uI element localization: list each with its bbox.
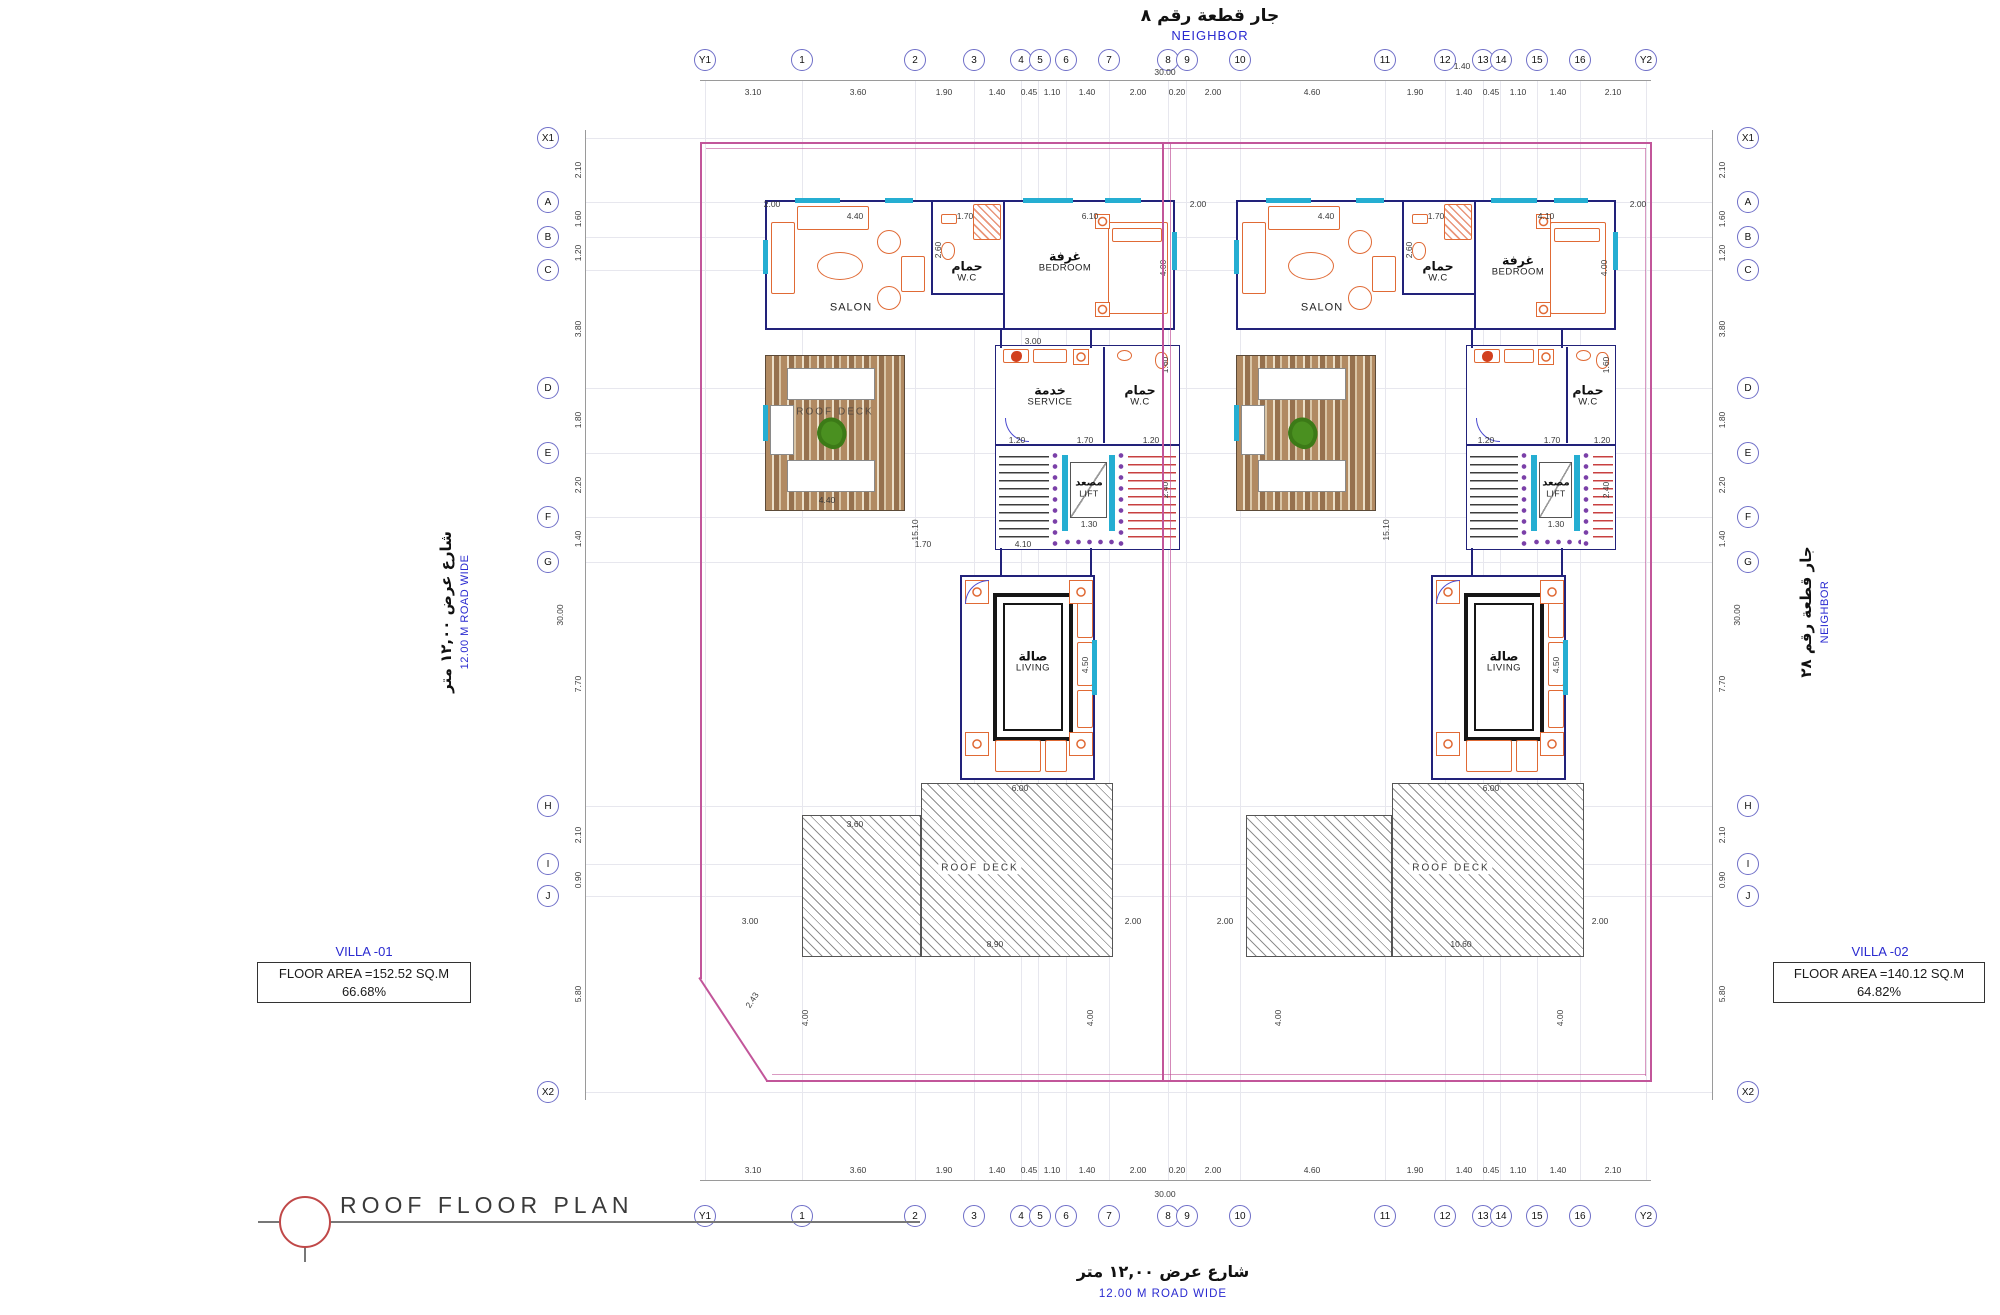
- villa1-percent: 66.68%: [262, 983, 466, 1001]
- grid-bubble: 16: [1569, 49, 1591, 71]
- dimension-text: 6.10: [1082, 211, 1099, 221]
- window-fill: [1234, 240, 1239, 274]
- dimension-text: 4.00: [1599, 260, 1609, 277]
- grid-bubble: G: [537, 551, 559, 573]
- dimension-text: 1.40: [989, 87, 1006, 97]
- wc-label-arabic: حمام: [1572, 383, 1603, 397]
- dimension-text: 1.60: [1717, 211, 1727, 228]
- dimension-text: 1.70: [957, 211, 974, 221]
- roof-deck-label-box: ROOF DECK: [938, 862, 1021, 874]
- dimension-text: 1.90: [1407, 1165, 1424, 1175]
- dimension-text: 1.30: [1081, 519, 1098, 529]
- deck-furniture: [1258, 460, 1346, 492]
- dimension-text: 1.20: [1717, 245, 1727, 262]
- dimension-text: 7.70: [573, 676, 583, 693]
- grid-line: [705, 80, 706, 1180]
- dimension-text: 2.10: [1717, 162, 1727, 179]
- armchair: [1372, 256, 1396, 292]
- lift-shaft-wall: [1531, 455, 1537, 531]
- grid-bubble: 10: [1229, 1205, 1251, 1227]
- seat: [1548, 600, 1564, 638]
- grid-bubble: C: [1737, 259, 1759, 281]
- wall: [931, 293, 1005, 295]
- grid-bubble: 9: [1176, 49, 1198, 71]
- wc-label-arabic: حمام: [1124, 383, 1155, 397]
- site-boundary-inner-line: [1645, 148, 1646, 1076]
- lift-shaft-wall: [1574, 455, 1580, 531]
- window-fill: [1266, 198, 1311, 203]
- window-fill: [1105, 198, 1141, 203]
- room-label-lift: مصعد LIFT: [1542, 477, 1569, 498]
- roof-deck-label: ROOF DECK: [796, 406, 873, 417]
- dimension-text: 2.10: [1605, 87, 1622, 97]
- dimension-text: 4.00: [800, 1010, 810, 1027]
- room-label-service: خدمة SERVICE: [1027, 383, 1072, 408]
- wall: [1474, 202, 1476, 328]
- dimension-text: 1.40: [1717, 531, 1727, 548]
- roof-floor-plan-drawing: جار قطعة رقم ٨ NEIGHBOR Y1 1 2 3 4 5 6 7…: [0, 0, 2000, 1315]
- dimension-text: 3.80: [573, 321, 583, 338]
- dimension-text: 2.20: [573, 477, 583, 494]
- corner-seat: [1069, 580, 1093, 604]
- dimension-text: 0.90: [573, 872, 583, 889]
- grid-bubble: I: [1737, 853, 1759, 875]
- baluster-dots: [1520, 450, 1529, 548]
- armchair: [877, 230, 901, 254]
- window-fill: [1356, 198, 1384, 203]
- corner-seat: [965, 732, 989, 756]
- sofa: [1242, 222, 1266, 294]
- grid-bubble: H: [1737, 795, 1759, 817]
- seat: [1516, 740, 1538, 772]
- service-label-arabic: خدمة: [1027, 383, 1072, 397]
- grid-bubble: 6: [1055, 1205, 1077, 1227]
- dimension-text: 2.10: [1717, 827, 1727, 844]
- dimension-line: [700, 1180, 1651, 1181]
- grid-bubble: E: [537, 442, 559, 464]
- toilet: [941, 242, 955, 260]
- window-fill: [1172, 232, 1177, 270]
- bedroom-label-arabic: غرفة: [1039, 249, 1092, 263]
- dimension-text: 6.00: [1483, 783, 1500, 793]
- dimension-text: 8.90: [987, 939, 1004, 949]
- baluster-dots: [1531, 538, 1581, 547]
- dimension-text: 3.00: [742, 916, 759, 926]
- room-label-wc2: حمام W.C: [1572, 383, 1603, 408]
- dimension-text: 1.20: [1478, 435, 1495, 445]
- villa2-floor-area: FLOOR AREA =140.12 SQ.M: [1778, 965, 1980, 983]
- dimension-text: 4.00: [1273, 1010, 1283, 1027]
- wc-label-english: W.C: [1422, 274, 1453, 285]
- grid-bubble: A: [537, 191, 559, 213]
- room-label-living: صالة LIVING: [1016, 649, 1050, 674]
- dimension-text: 1.70: [1544, 435, 1561, 445]
- sink: [1412, 214, 1428, 224]
- wc-label-arabic: حمام: [951, 259, 982, 273]
- dimension-text: 4.60: [1304, 87, 1321, 97]
- dimension-text: 2.00: [1190, 199, 1207, 209]
- grid-bubble: X1: [1737, 127, 1759, 149]
- dimension-text: 1.40: [1550, 87, 1567, 97]
- dimension-text: 1.40: [1454, 61, 1471, 71]
- wc-label-arabic: حمام: [1422, 259, 1453, 273]
- overall-dimension: 30.00: [1154, 1189, 1175, 1199]
- grid-bubble: 9: [1176, 1205, 1198, 1227]
- grid-bubble: D: [1737, 377, 1759, 399]
- baluster-dots: [1582, 450, 1591, 548]
- sink: [1576, 350, 1591, 361]
- dimension-text: 2.40: [1601, 482, 1611, 499]
- left-road-label: شارع عرض ١٢,٠٠ متر 12.00 M ROAD WIDE: [437, 531, 473, 693]
- grid-bubble: 2: [904, 49, 926, 71]
- armchair: [1348, 286, 1372, 310]
- grid-bubble: 1: [791, 1205, 813, 1227]
- overall-dimension: 30.00: [1154, 67, 1175, 77]
- dimension-text: 1.10: [1510, 87, 1527, 97]
- dimension-text: 0.90: [1717, 872, 1727, 889]
- window-fill: [1491, 198, 1537, 203]
- room-label-bedroom: غرفة BEDROOM: [1039, 249, 1092, 274]
- corner-seat: [1540, 580, 1564, 604]
- armchair: [1348, 230, 1372, 254]
- hatched-roof-deck: [1246, 815, 1392, 957]
- grid-bubble: D: [537, 377, 559, 399]
- villa2-percent: 64.82%: [1778, 983, 1980, 1001]
- overall-dimension: 30.00: [555, 604, 565, 625]
- grid-bubble: I: [537, 853, 559, 875]
- room-label-wc2: حمام W.C: [1124, 383, 1155, 408]
- coffee-table: [1288, 252, 1334, 280]
- dimension-text: 2.00: [1205, 87, 1222, 97]
- dimension-text: 4.60: [1304, 1165, 1321, 1175]
- dimension-text: 1.10: [1510, 1165, 1527, 1175]
- dimension-text: 15.10: [1381, 519, 1391, 540]
- dimension-text: 2.00: [1125, 916, 1142, 926]
- living-label-arabic: صالة: [1487, 649, 1521, 663]
- dimension-text: 2.10: [573, 827, 583, 844]
- dimension-text: 1.20: [573, 245, 583, 262]
- nightstand: [1095, 302, 1110, 317]
- deck-furniture: [787, 368, 875, 400]
- dimension-text: 6.00: [1012, 783, 1029, 793]
- deck-furniture: [787, 460, 875, 492]
- window-fill: [1234, 405, 1239, 441]
- room-label-salon: SALON: [830, 302, 872, 315]
- plot-divider-line: [1162, 142, 1164, 1080]
- grid-line: [585, 1092, 1712, 1093]
- dimension-text: 1.40: [989, 1165, 1006, 1175]
- dimension-text: 0.45: [1021, 87, 1038, 97]
- dimension-text: 0.45: [1483, 1165, 1500, 1175]
- stair-treads: [999, 452, 1049, 544]
- dimension-text: 1.20: [1009, 435, 1026, 445]
- site-boundary-line: [700, 142, 702, 979]
- dimension-text: 1.60: [1601, 357, 1611, 374]
- dimension-text: 1.90: [1407, 87, 1424, 97]
- deck-furniture: [770, 405, 794, 455]
- grid-bubble: A: [1737, 191, 1759, 213]
- dimension-text: 2.10: [573, 162, 583, 179]
- dimension-text: 7.70: [1717, 676, 1727, 693]
- wc-label-english: W.C: [951, 274, 982, 285]
- grid-line: [1186, 80, 1187, 1180]
- bottom-road-arabic: شارع عرض ١٢,٠٠ متر: [1077, 1262, 1250, 1281]
- lift-label-arabic: مصعد: [1075, 477, 1102, 489]
- dimension-text: 2.00: [764, 199, 781, 209]
- dimension-text: 1.40: [1456, 87, 1473, 97]
- plot-divider-line: [1170, 142, 1171, 1080]
- armchair: [877, 286, 901, 310]
- living-label-english: LIVING: [1487, 664, 1521, 675]
- grid-bubble: Y1: [694, 49, 716, 71]
- dimension-text: 0.20: [1169, 1165, 1186, 1175]
- seat: [1077, 690, 1093, 728]
- grid-bubble: F: [1737, 506, 1759, 528]
- grid-bubble: Y1: [694, 1205, 716, 1227]
- corner-seat: [1540, 732, 1564, 756]
- corner-seat: [1436, 732, 1460, 756]
- dimension-line: [585, 130, 586, 1100]
- grid-bubble: 5: [1029, 49, 1051, 71]
- dimension-text: 5.80: [1717, 986, 1727, 1003]
- drawing-title: ROOF FLOOR PLAN: [340, 1192, 634, 1219]
- wall: [1561, 328, 1563, 348]
- grid-bubble: 7: [1098, 49, 1120, 71]
- grid-bubble: 1: [791, 49, 813, 71]
- dimension-text: 4.10: [1015, 539, 1032, 549]
- site-boundary-inner-line: [772, 1074, 1646, 1075]
- salon-label: SALON: [830, 302, 872, 315]
- window-fill: [1554, 198, 1588, 203]
- grid-bubble: E: [1737, 442, 1759, 464]
- dimension-text: 2.00: [1592, 916, 1609, 926]
- grid-bubble: X2: [1737, 1081, 1759, 1103]
- dimension-text: 5.80: [573, 986, 583, 1003]
- nightstand: [1536, 302, 1551, 317]
- dimension-text: 1.90: [936, 1165, 953, 1175]
- dimension-text: 4.40: [819, 495, 836, 505]
- dimension-text: 2.60: [933, 242, 943, 259]
- living-label-english: LIVING: [1016, 664, 1050, 675]
- grid-bubble: Y2: [1635, 1205, 1657, 1227]
- dimension-text: 4.00: [1085, 1010, 1095, 1027]
- grid-bubble: 16: [1569, 1205, 1591, 1227]
- grid-bubble: J: [1737, 885, 1759, 907]
- dimension-text: 2.00: [1130, 87, 1147, 97]
- seat: [1077, 600, 1093, 638]
- roof-deck-label: ROOF DECK: [941, 862, 1018, 873]
- living-label-arabic: صالة: [1016, 649, 1050, 663]
- baluster-dots: [1051, 450, 1060, 548]
- grid-bubble: X1: [537, 127, 559, 149]
- grid-bubble: H: [537, 795, 559, 817]
- dimension-text: 1.20: [1594, 435, 1611, 445]
- villa1-info-box: FLOOR AREA =152.52 SQ.M 66.68%: [257, 962, 471, 1003]
- stair-treads: [1470, 452, 1518, 544]
- villa-1-plan: SALON حمام W.C غرفة BEDROOM 4.40 1.70 6.…: [765, 200, 1180, 957]
- roof-deck-label: ROOF DECK: [1412, 862, 1489, 873]
- dimension-text: 15.10: [910, 519, 920, 540]
- dimension-text: 2.20: [1717, 477, 1727, 494]
- site-boundary-line: [1650, 142, 1652, 1082]
- roof-deck-label-box: ROOF DECK: [1409, 862, 1492, 874]
- dimension-text: 10.60: [1450, 939, 1471, 949]
- grid-bubble: 7: [1098, 1205, 1120, 1227]
- baluster-dots: [1062, 538, 1116, 547]
- wall: [1000, 548, 1002, 576]
- washing-machine: [1538, 349, 1554, 365]
- dimension-text: 3.60: [850, 1165, 867, 1175]
- window-fill: [763, 405, 768, 441]
- window-fill: [1613, 232, 1618, 270]
- wood-deck-label: ROOF DECK: [796, 406, 873, 418]
- grid-bubble: 15: [1526, 1205, 1548, 1227]
- dimension-text: 4.00: [1555, 1010, 1565, 1027]
- dimension-text: 1.10: [1044, 1165, 1061, 1175]
- dimension-text: 1.40: [573, 531, 583, 548]
- room-label-bedroom: غرفة BEDROOM: [1492, 253, 1545, 278]
- dimension-text: 1.30: [1548, 519, 1565, 529]
- dimension-text: 3.60: [850, 87, 867, 97]
- title-mark-circle: [279, 1196, 331, 1248]
- window-fill: [763, 240, 768, 274]
- grid-bubble: 3: [963, 1205, 985, 1227]
- wall: [1566, 347, 1568, 443]
- grid-bubble: 6: [1055, 49, 1077, 71]
- wc-label-english: W.C: [1124, 398, 1155, 409]
- grid-bubble: B: [537, 226, 559, 248]
- villa1-floor-area: FLOOR AREA =152.52 SQ.M: [262, 965, 466, 983]
- grid-bubble: 5: [1029, 1205, 1051, 1227]
- wall: [1000, 328, 1002, 348]
- dimension-text: 0.45: [1483, 87, 1500, 97]
- grid-line: [585, 138, 1712, 139]
- lift-shaft-wall: [1109, 455, 1115, 531]
- wall: [1103, 347, 1105, 443]
- seat: [1466, 740, 1512, 772]
- dimension-text: 3.60: [847, 819, 864, 829]
- right-neighbor-label: جار قطعة رقم ٢٨ NEIGHBOR: [1797, 546, 1833, 677]
- wall: [1402, 293, 1476, 295]
- deck-furniture: [1258, 368, 1346, 400]
- dimension-text: 4.40: [847, 211, 864, 221]
- dimension-text: 1.70: [1428, 211, 1445, 221]
- grid-bubble: 11: [1374, 49, 1396, 71]
- window-fill: [1092, 640, 1097, 695]
- lift-label-arabic: مصعد: [1542, 477, 1569, 489]
- dimension-text: 2.43: [743, 990, 760, 1009]
- window-fill: [1023, 198, 1073, 203]
- site-boundary-line: [766, 1080, 1652, 1082]
- baluster-dots: [1117, 450, 1126, 548]
- sofa: [771, 222, 795, 294]
- wall: [1003, 202, 1005, 328]
- grid-bubble: F: [537, 506, 559, 528]
- armchair: [901, 256, 925, 292]
- wc-label-english: W.C: [1572, 398, 1603, 409]
- grid-bubble: X2: [537, 1081, 559, 1103]
- room-label-salon: SALON: [1301, 302, 1343, 315]
- bedroom-label-english: BEDROOM: [1492, 268, 1545, 279]
- dimension-text: 1.70: [1077, 435, 1094, 445]
- dimension-text: 2.60: [1404, 242, 1414, 259]
- site-boundary-line: [700, 142, 1652, 144]
- bottom-road-english: 12.00 M ROAD WIDE: [1099, 1288, 1227, 1300]
- sink: [941, 214, 957, 224]
- window-fill: [885, 198, 913, 203]
- dimension-text: 1.20: [1143, 435, 1160, 445]
- top-neighbor-label: NEIGHBOR: [1171, 28, 1248, 43]
- dimension-line: [700, 80, 1651, 81]
- grid-bubble: 12: [1434, 1205, 1456, 1227]
- room-label-living: صالة LIVING: [1487, 649, 1521, 674]
- sink: [1117, 350, 1132, 361]
- grid-bubble: B: [1737, 226, 1759, 248]
- villa1-name: VILLA -01: [335, 944, 392, 959]
- corner-seat: [1069, 732, 1093, 756]
- dimension-text: 4.40: [1318, 211, 1335, 221]
- grid-bubble: 14: [1490, 49, 1512, 71]
- site-boundary-inner-line: [706, 148, 1646, 149]
- dimension-text: 1.80: [1717, 412, 1727, 429]
- pillow: [1112, 228, 1162, 242]
- grid-bubble: 10: [1229, 49, 1251, 71]
- deck-furniture: [1241, 405, 1265, 455]
- salon-label: SALON: [1301, 302, 1343, 315]
- seat: [995, 740, 1041, 772]
- dimension-text: 3.00: [1025, 336, 1042, 346]
- dimension-text: 1.70: [915, 539, 932, 549]
- dimension-text: 4.50: [1080, 657, 1090, 674]
- window-fill: [795, 198, 840, 203]
- hatched-roof-deck: [802, 815, 921, 957]
- wall: [1561, 548, 1563, 576]
- coffee-table: [817, 252, 863, 280]
- dimension-text: 1.90: [936, 87, 953, 97]
- dimension-text: 4.50: [1551, 657, 1561, 674]
- lift-shaft-wall: [1062, 455, 1068, 531]
- grid-bubble: 11: [1374, 1205, 1396, 1227]
- seat: [1045, 740, 1067, 772]
- shower: [973, 204, 1001, 240]
- grid-bubble: 2: [904, 1205, 926, 1227]
- washing-machine: [1073, 349, 1089, 365]
- dimension-text: 0.20: [1169, 87, 1186, 97]
- dimension-text: 1.40: [1079, 1165, 1096, 1175]
- grid-bubble: C: [537, 259, 559, 281]
- wall: [1471, 328, 1473, 348]
- dimension-text: 2.10: [1605, 1165, 1622, 1175]
- right-neighbor-english: NEIGHBOR: [1819, 581, 1831, 644]
- dimension-text: 1.40: [1456, 1165, 1473, 1175]
- grid-bubble: 12: [1434, 49, 1456, 71]
- lift-label-english: LIFT: [1542, 489, 1569, 499]
- grid-bubble: 3: [963, 49, 985, 71]
- dimension-text: 2.00: [1217, 916, 1234, 926]
- wall: [1090, 328, 1092, 348]
- right-neighbor-arabic: جار قطعة رقم ٢٨: [1797, 546, 1815, 677]
- window-fill: [1563, 640, 1568, 695]
- dimension-text: 3.10: [745, 1165, 762, 1175]
- dimension-line: [1712, 130, 1713, 1100]
- toilet: [1412, 242, 1426, 260]
- room-label-wc: حمام W.C: [951, 259, 982, 284]
- dimension-text: 1.40: [1550, 1165, 1567, 1175]
- left-road-english: 12.00 M ROAD WIDE: [459, 555, 471, 670]
- dimension-text: 1.40: [1079, 87, 1096, 97]
- service-label-english: SERVICE: [1027, 398, 1072, 409]
- room-label-wc: حمام W.C: [1422, 259, 1453, 284]
